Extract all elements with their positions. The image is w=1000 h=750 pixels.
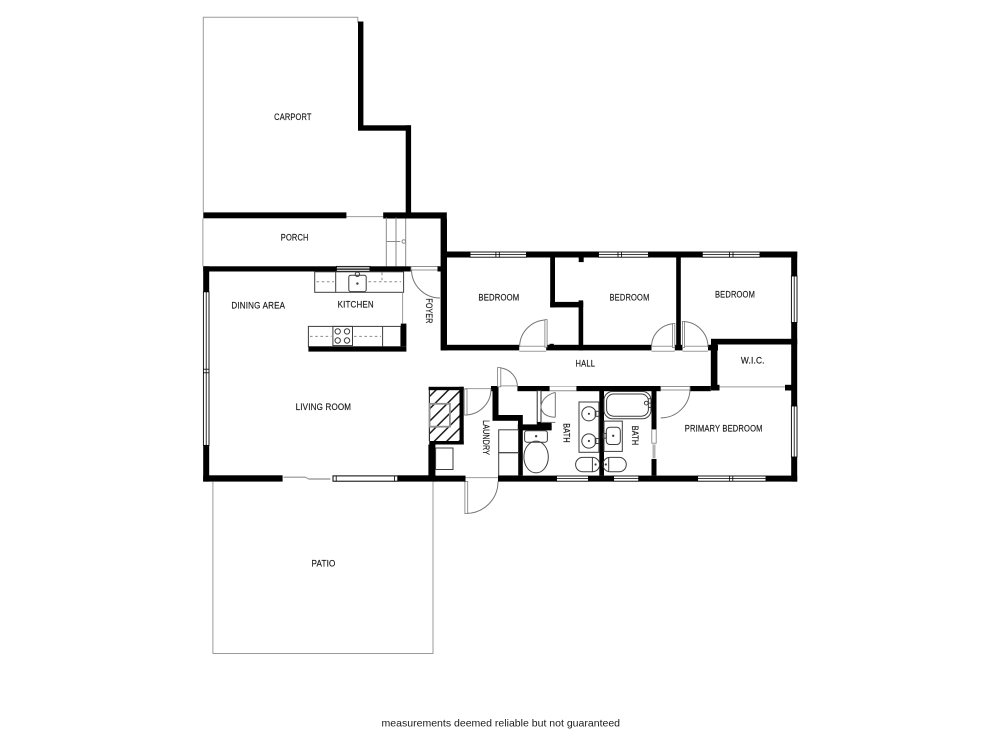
svg-text:BEDROOM: BEDROOM [715, 289, 755, 299]
svg-text:KITCHEN: KITCHEN [338, 299, 374, 309]
svg-text:BATH: BATH [562, 423, 572, 443]
svg-text:DINING AREA: DINING AREA [231, 301, 285, 311]
svg-text:PATIO: PATIO [312, 559, 336, 569]
svg-text:HALL: HALL [576, 359, 596, 369]
svg-text:FOYER: FOYER [424, 298, 434, 323]
svg-text:CARPORT: CARPORT [274, 112, 312, 122]
svg-text:W.I.C.: W.I.C. [741, 356, 765, 366]
svg-text:BATH: BATH [630, 426, 640, 446]
svg-text:PRIMARY BEDROOM: PRIMARY BEDROOM [685, 424, 763, 434]
svg-text:BEDROOM: BEDROOM [610, 292, 650, 302]
svg-text:PORCH: PORCH [281, 232, 309, 242]
svg-text:BEDROOM: BEDROOM [478, 293, 519, 303]
svg-text:LAUNDRY: LAUNDRY [481, 420, 491, 455]
svg-text:measurements deemed reliable b: measurements deemed reliable but not gua… [382, 719, 621, 730]
svg-text:LIVING ROOM: LIVING ROOM [296, 402, 352, 412]
